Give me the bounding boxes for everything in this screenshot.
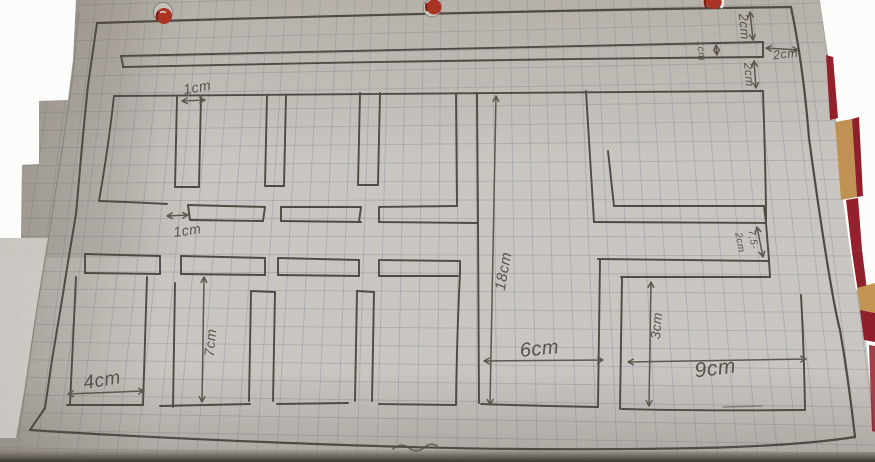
svg-text:2cm: 2cm — [736, 12, 753, 40]
svg-text:1cm: 1cm — [694, 40, 707, 61]
svg-text:6cm: 6cm — [519, 336, 560, 362]
svg-text:2cm: 2cm — [741, 61, 757, 87]
svg-text:7cm: 7cm — [201, 328, 219, 357]
svg-text:3cm: 3cm — [648, 311, 665, 339]
svg-text:2cm: 2cm — [771, 46, 798, 63]
